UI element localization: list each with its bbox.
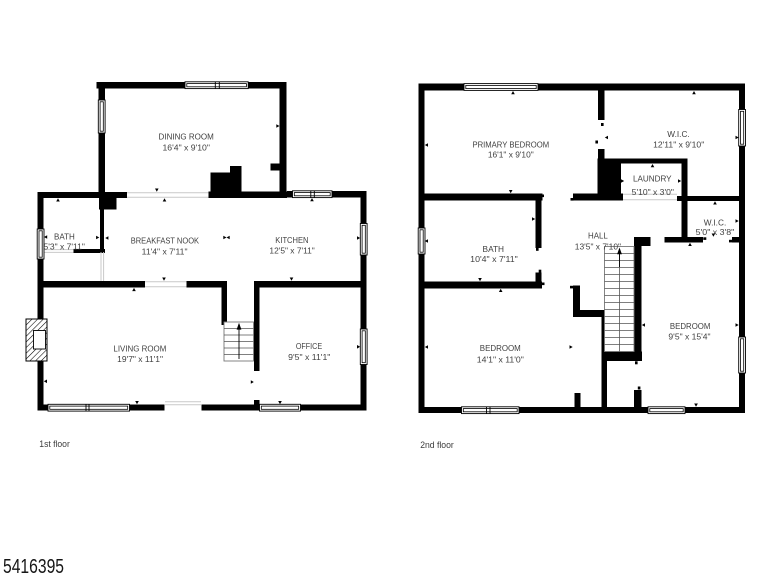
svg-text:DINING ROOM: DINING ROOM — [159, 133, 214, 142]
svg-text:9'5" x 15'4": 9'5" x 15'4" — [668, 333, 710, 342]
svg-text:W.I.C.: W.I.C. — [704, 219, 727, 228]
svg-text:LIVING ROOM: LIVING ROOM — [113, 344, 166, 353]
svg-text:14'1" x 11'0": 14'1" x 11'0" — [477, 356, 524, 365]
svg-text:BEDROOM: BEDROOM — [670, 322, 711, 331]
svg-text:1st floor: 1st floor — [39, 439, 70, 449]
svg-text:13'5" x 7'10": 13'5" x 7'10" — [575, 243, 621, 252]
svg-text:BREAKFAST NOOK: BREAKFAST NOOK — [131, 237, 200, 246]
svg-text:BEDROOM: BEDROOM — [480, 344, 521, 353]
svg-text:2nd floor: 2nd floor — [420, 440, 454, 450]
svg-text:5'3" x 7'11": 5'3" x 7'11" — [44, 243, 85, 252]
svg-text:W.I.C.: W.I.C. — [667, 130, 689, 139]
svg-text:BATH: BATH — [483, 245, 505, 254]
svg-text:KITCHEN: KITCHEN — [275, 236, 308, 245]
svg-text:5'10" x 3'0": 5'10" x 3'0" — [632, 188, 674, 197]
svg-text:LAUNDRY: LAUNDRY — [633, 175, 672, 184]
svg-text:16'1" x 9'10": 16'1" x 9'10" — [488, 151, 534, 160]
svg-text:5'0" x 3'8": 5'0" x 3'8" — [696, 228, 735, 237]
svg-text:BATH: BATH — [54, 232, 75, 241]
svg-text:PRIMARY BEDROOM: PRIMARY BEDROOM — [472, 140, 549, 149]
svg-text:16'4" x 9'10": 16'4" x 9'10" — [163, 143, 210, 152]
svg-text:9'5" x 11'1": 9'5" x 11'1" — [288, 353, 330, 362]
svg-text:HALL: HALL — [588, 232, 608, 241]
svg-text:12'5" x 7'11": 12'5" x 7'11" — [269, 247, 314, 256]
svg-text:19'7" x 11'1": 19'7" x 11'1" — [117, 355, 163, 364]
svg-text:5416395: 5416395 — [3, 556, 64, 576]
svg-text:12'11" x 9'10": 12'11" x 9'10" — [653, 141, 704, 150]
svg-text:OFFICE: OFFICE — [296, 342, 322, 351]
svg-text:11'4" x 7'11": 11'4" x 7'11" — [142, 248, 188, 257]
svg-text:10'4" x 7'11": 10'4" x 7'11" — [470, 255, 518, 264]
